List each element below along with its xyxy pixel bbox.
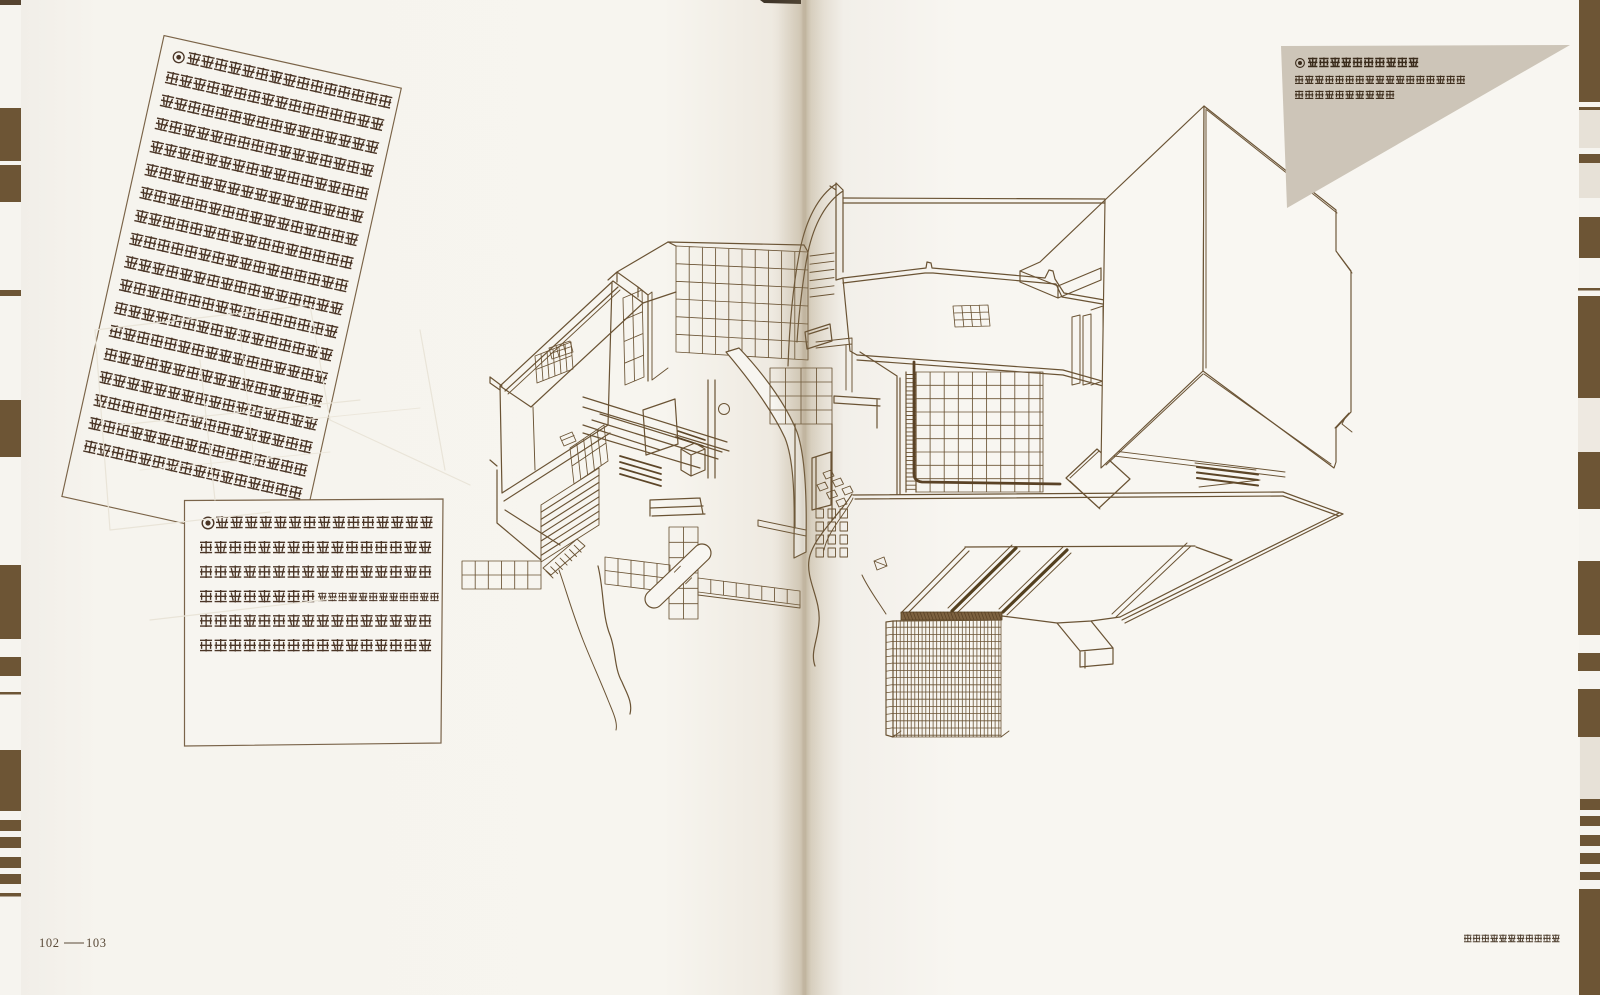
svg-text:102: 102	[39, 936, 60, 950]
svg-text:103: 103	[86, 936, 107, 950]
